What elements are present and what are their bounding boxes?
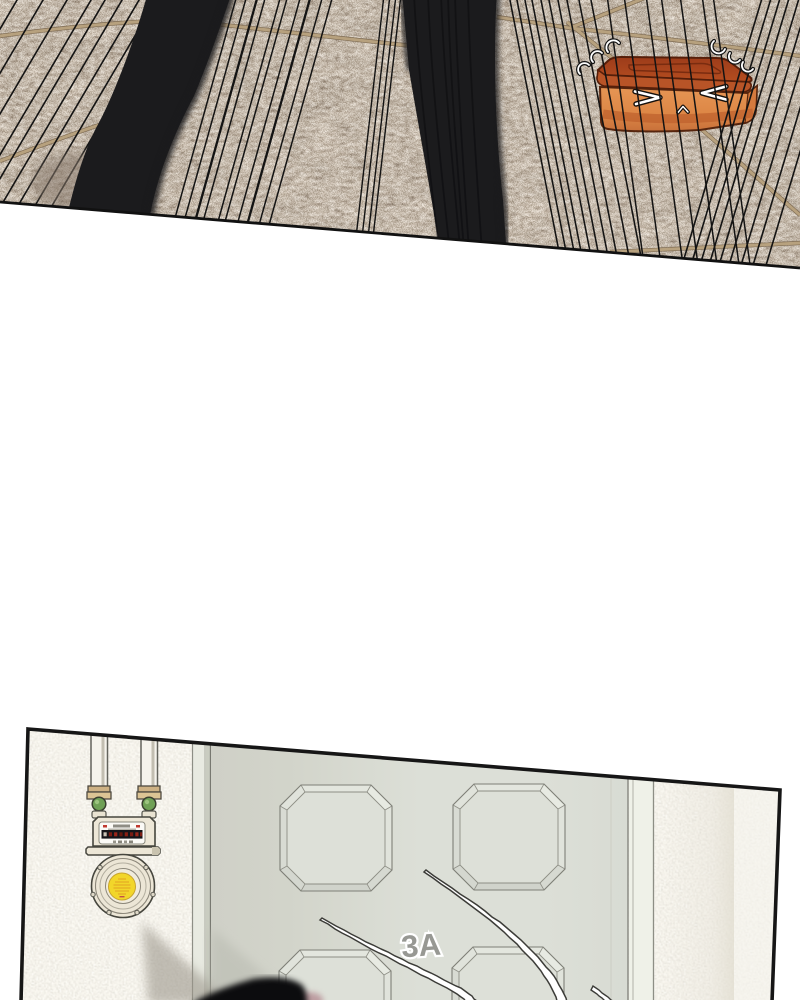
svg-text:3A: 3A: [400, 927, 442, 965]
